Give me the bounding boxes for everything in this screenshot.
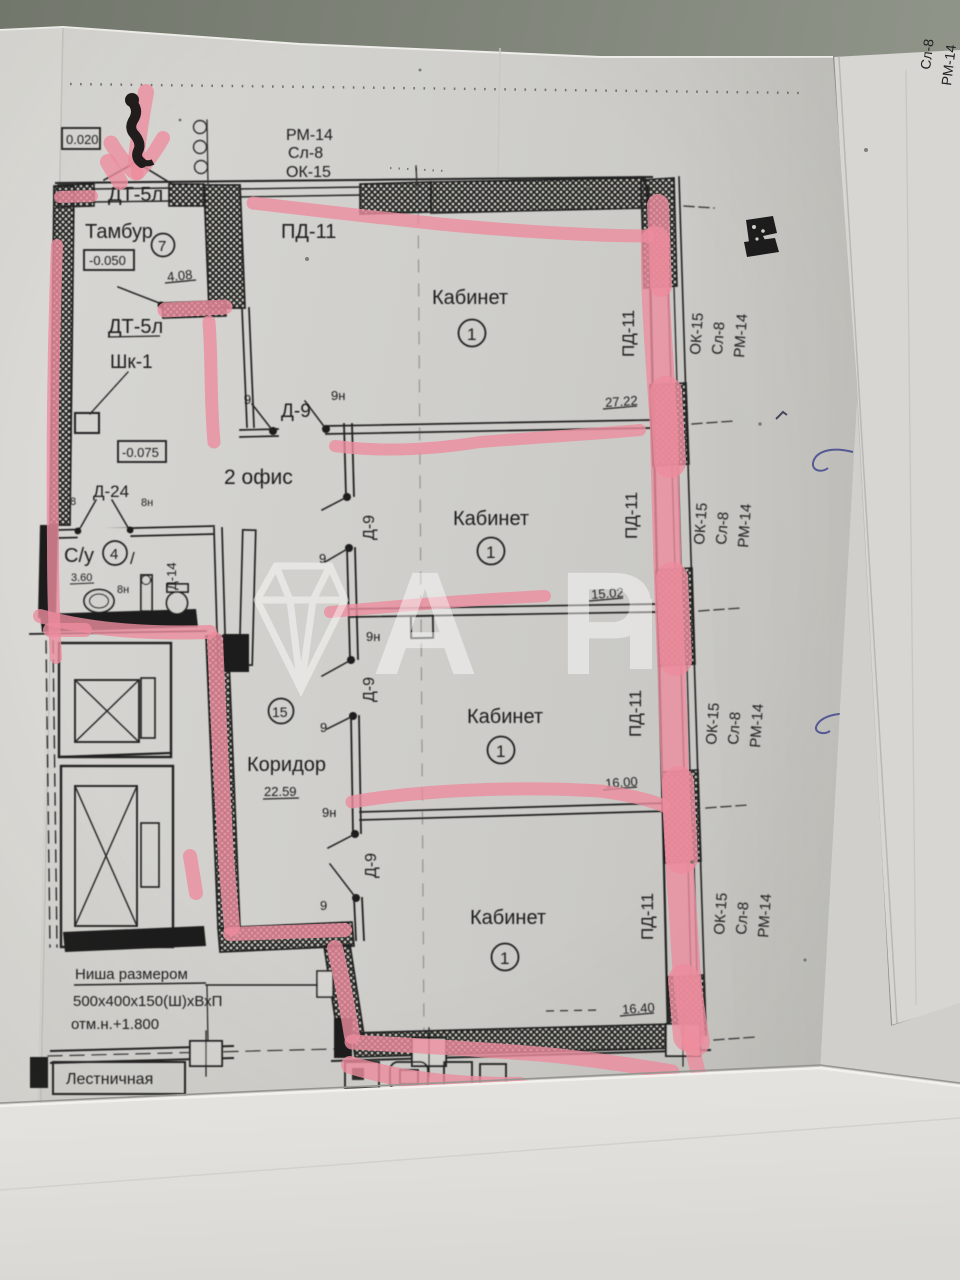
svg-text:А: А [372, 542, 478, 706]
